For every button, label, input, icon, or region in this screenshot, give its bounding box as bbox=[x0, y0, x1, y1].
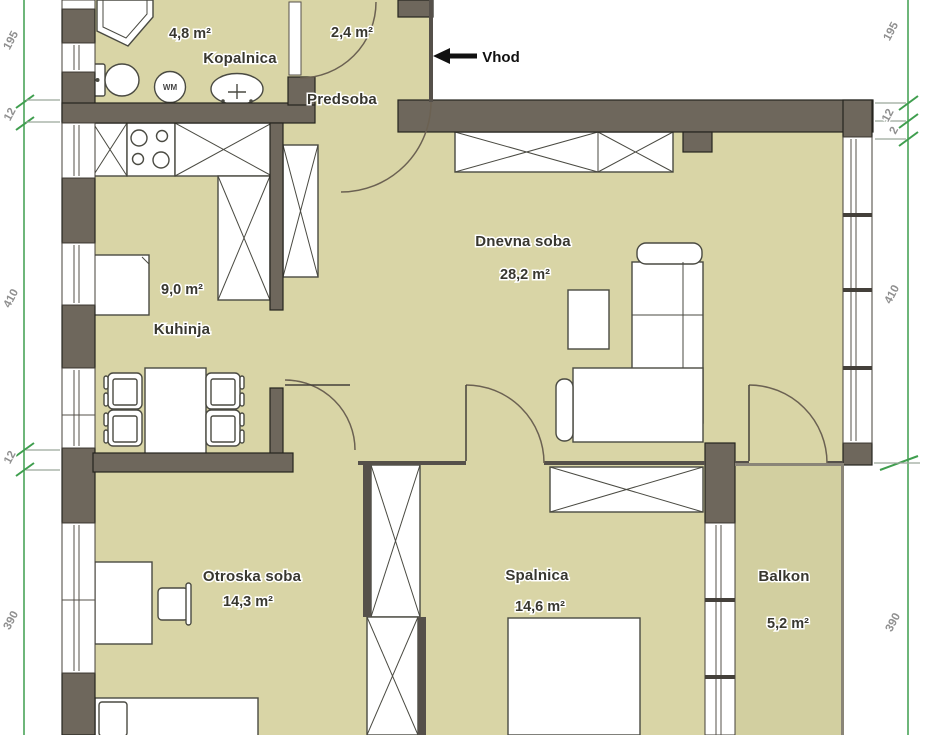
floorplan-page: 4,8 m² Kopalnica 2,4 m² Predsoba Vhod Dn… bbox=[0, 0, 935, 735]
wall-segment bbox=[418, 617, 426, 735]
child-bed-icon bbox=[95, 698, 258, 735]
wall-segment bbox=[843, 443, 872, 465]
room-label-predsoba: Predsoba bbox=[307, 91, 377, 108]
wall-segment bbox=[843, 100, 872, 137]
kitchen-counter-icon bbox=[175, 123, 272, 176]
balcony-edge bbox=[841, 463, 844, 735]
room-label-kopalnica: Kopalnica bbox=[203, 50, 277, 67]
wardrobe-icon bbox=[367, 465, 420, 735]
dim-right-2: 2 bbox=[888, 125, 902, 136]
wall-segment bbox=[683, 132, 712, 152]
stove-icon bbox=[127, 123, 175, 176]
dimension-extension-lines bbox=[26, 100, 60, 470]
sink-icon bbox=[211, 74, 263, 105]
toilet-icon bbox=[90, 64, 139, 96]
room-balkon-floor bbox=[735, 465, 843, 735]
entrance-label: Vhod bbox=[482, 49, 520, 66]
wall-segment bbox=[363, 465, 371, 617]
wall-segment bbox=[93, 453, 293, 472]
wall-segment bbox=[398, 0, 433, 17]
washing-machine-label: WM bbox=[163, 83, 178, 92]
balcony-edge bbox=[735, 463, 843, 466]
dim-left-195: 195 bbox=[2, 29, 22, 52]
wall-segment bbox=[398, 100, 873, 132]
wall-segment bbox=[705, 443, 735, 523]
room-label-spalnica: Spalnica bbox=[505, 567, 569, 584]
dim-right-195: 195 bbox=[882, 20, 902, 43]
room-area-kuhinja: 9,0 m² bbox=[161, 282, 203, 298]
window-icon bbox=[843, 137, 872, 443]
bedroom-wardrobe-icon bbox=[550, 467, 703, 512]
room-area-spalnica: 14,6 m² bbox=[515, 599, 565, 615]
wall-segment bbox=[270, 123, 283, 310]
wall-segment bbox=[62, 305, 95, 368]
room-area-dnevna-soba: 28,2 m² bbox=[500, 267, 550, 283]
dim-left-390: 390 bbox=[2, 609, 22, 632]
room-label-otroska-soba: Otroska soba bbox=[203, 568, 302, 585]
wall-segment bbox=[62, 673, 95, 735]
dim-right-410: 410 bbox=[883, 283, 903, 306]
dimension-extension-lines bbox=[874, 103, 920, 463]
hall-wardrobe-icon bbox=[283, 145, 318, 277]
wall-segment bbox=[62, 103, 315, 123]
fridge-cabinet-icon bbox=[218, 176, 270, 300]
dim-left-12b: 12 bbox=[2, 449, 19, 466]
dim-left-12a: 12 bbox=[2, 106, 19, 123]
room-area-balkon: 5,2 m² bbox=[767, 616, 809, 632]
wall-segment bbox=[62, 448, 95, 523]
room-area-predsoba: 2,4 m² bbox=[331, 25, 373, 41]
floorplan-drawing: 4,8 m² Kopalnica 2,4 m² Predsoba Vhod Dn… bbox=[0, 0, 935, 735]
bathroom-door-leaf bbox=[289, 2, 301, 75]
dimension-ticks bbox=[880, 96, 918, 470]
wall-segment bbox=[62, 9, 95, 43]
room-area-kopalnica: 4,8 m² bbox=[169, 26, 211, 42]
window-icon bbox=[705, 523, 735, 735]
living-cabinet-icon bbox=[455, 132, 673, 172]
room-label-balkon: Balkon bbox=[758, 568, 809, 585]
dimension-ticks bbox=[16, 95, 34, 476]
kitchen-cabinet-icon bbox=[93, 123, 127, 176]
wall-segment bbox=[358, 461, 466, 465]
dining-table-icon bbox=[145, 368, 206, 454]
desk-icon bbox=[95, 562, 152, 644]
dim-left-410: 410 bbox=[2, 287, 22, 310]
wall-segment bbox=[429, 0, 433, 102]
entrance-arrow-icon bbox=[433, 48, 477, 64]
room-label-kuhinja: Kuhinja bbox=[154, 321, 211, 338]
wall-segment bbox=[544, 461, 705, 465]
coffee-table-icon bbox=[568, 290, 609, 349]
room-area-otroska-soba: 14,3 m² bbox=[223, 594, 273, 610]
desk-chair-icon bbox=[158, 583, 191, 625]
dim-right-390: 390 bbox=[884, 611, 904, 634]
kitchen-appliance-icon bbox=[93, 255, 149, 315]
wall-segment bbox=[62, 178, 95, 243]
room-label-dnevna-soba: Dnevna soba bbox=[475, 233, 571, 250]
double-bed-icon bbox=[508, 618, 640, 735]
